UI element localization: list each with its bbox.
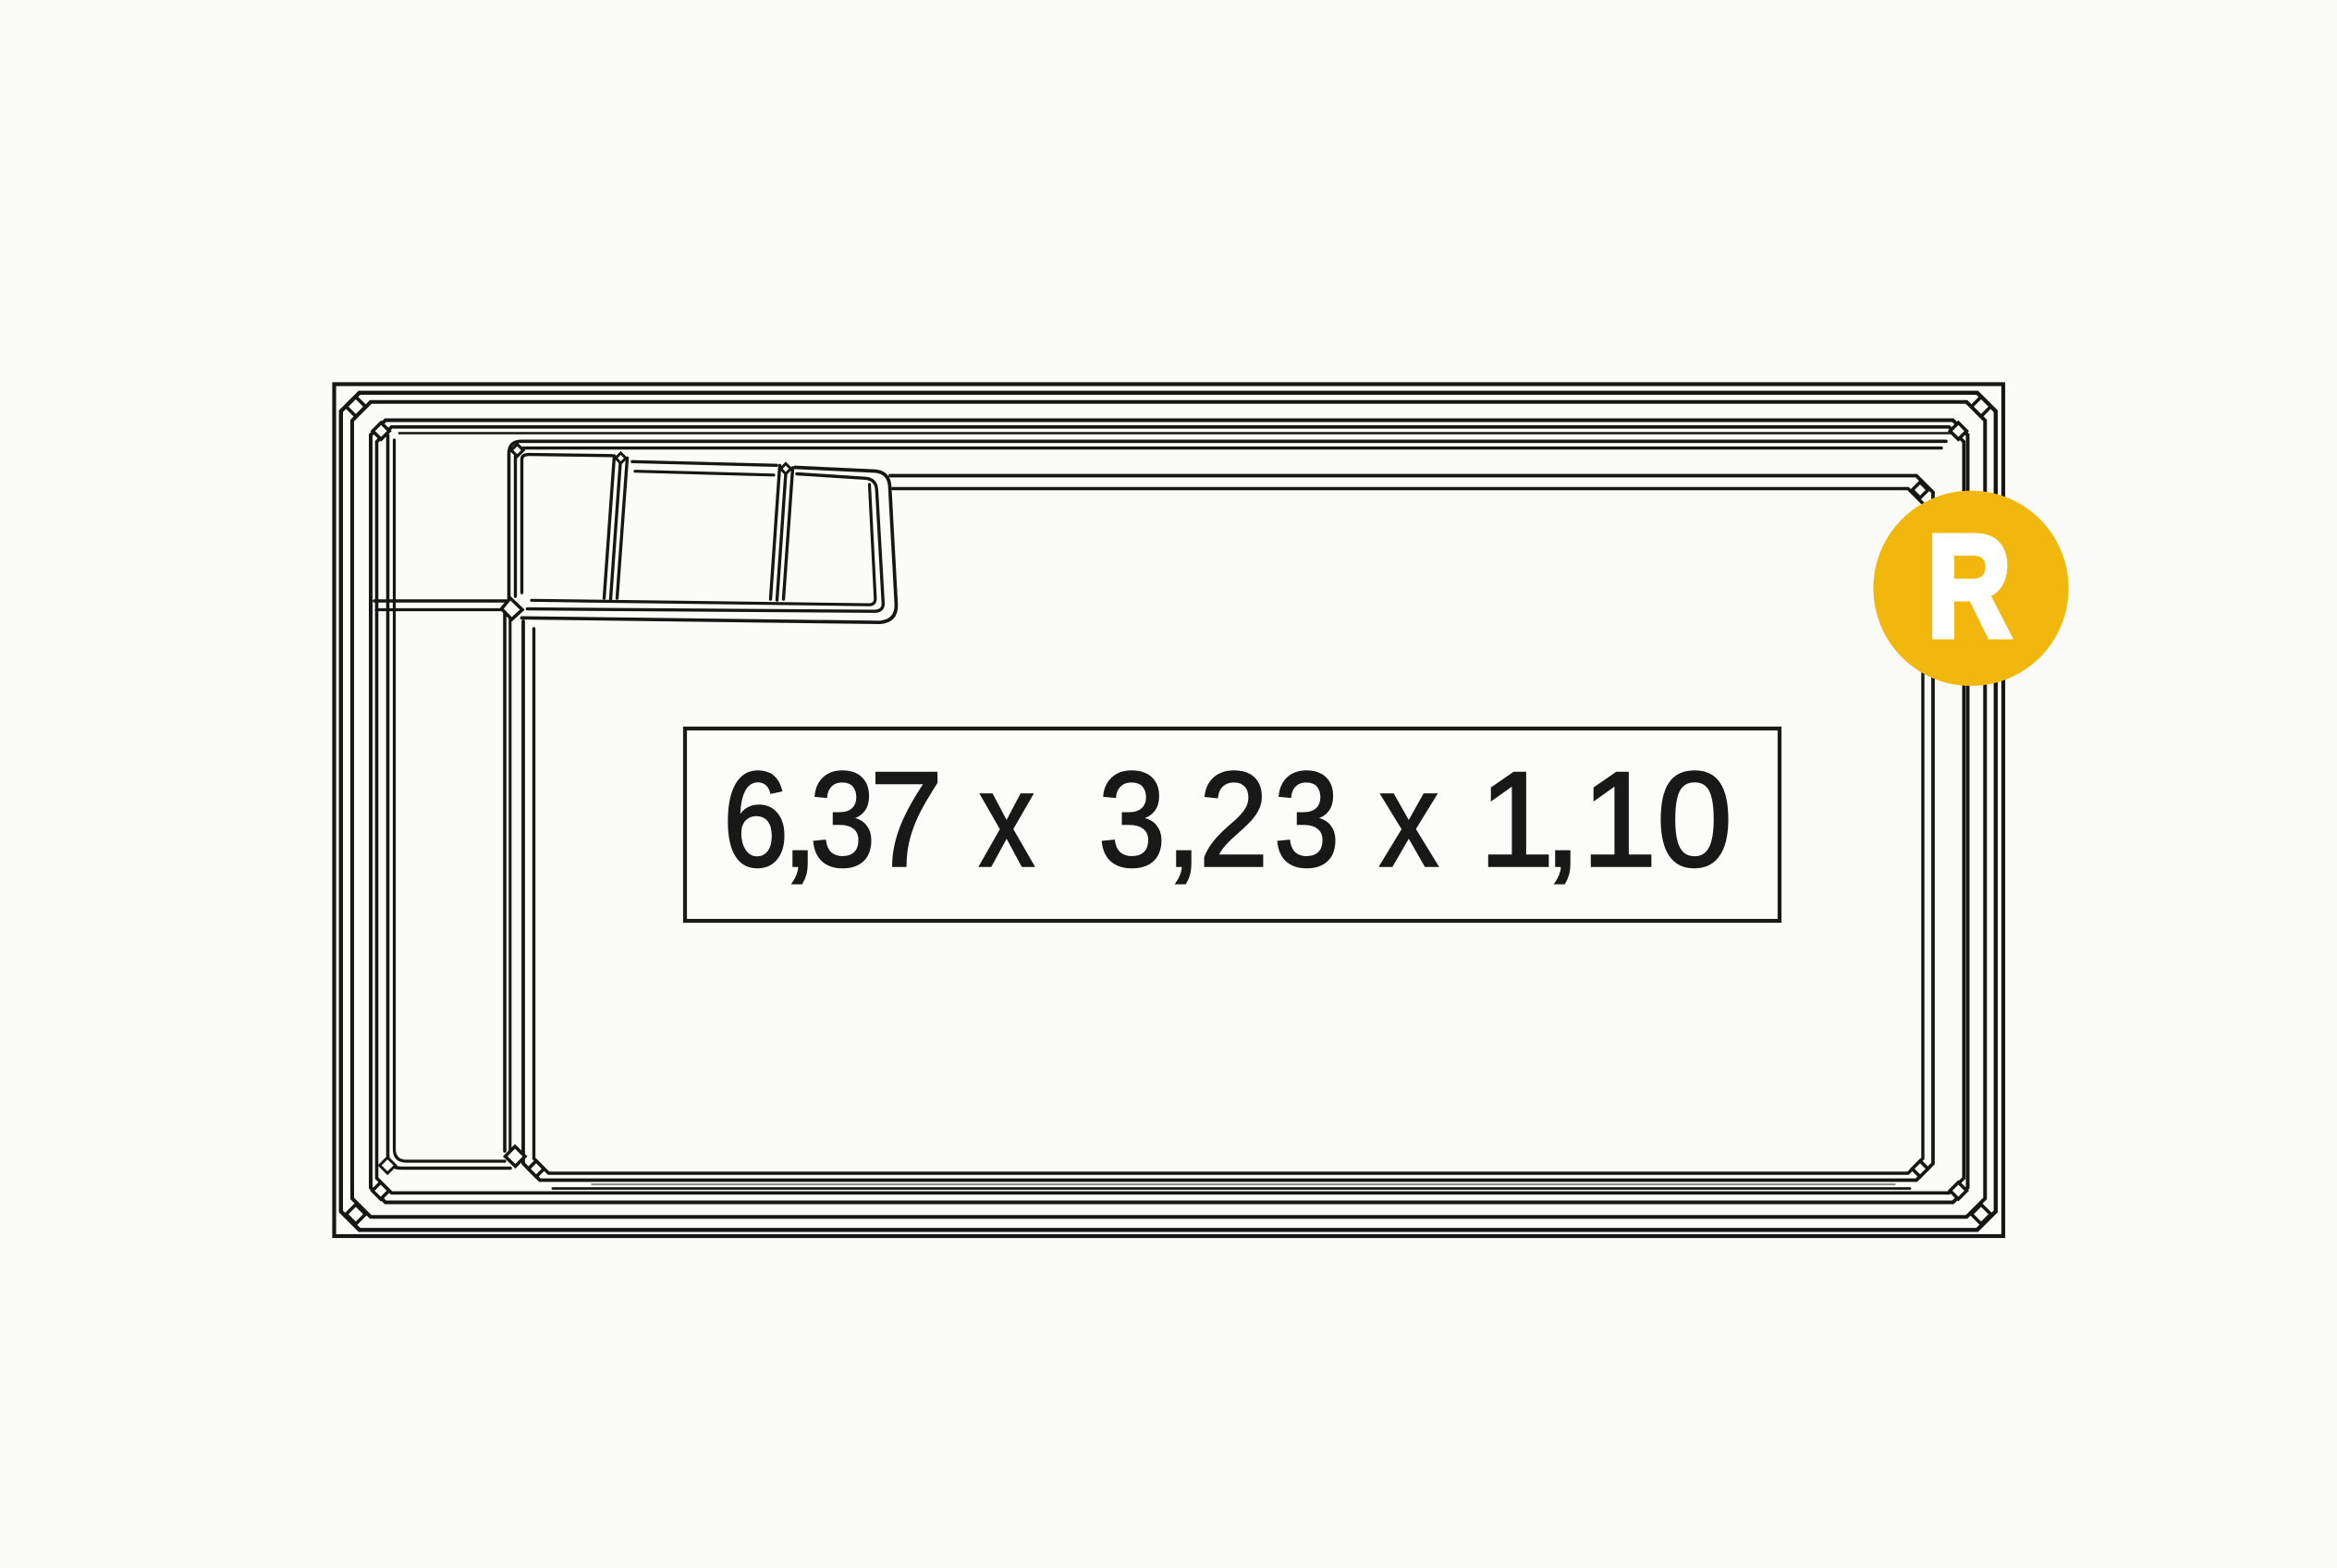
- svg-text:3: 3: [1098, 744, 1166, 895]
- svg-text:,: ,: [1165, 744, 1203, 895]
- svg-text:R: R: [1927, 506, 2012, 668]
- svg-text:3: 3: [1274, 744, 1340, 895]
- svg-text:,: ,: [1544, 744, 1582, 895]
- svg-text:2: 2: [1199, 744, 1268, 895]
- svg-text:6: 6: [723, 744, 789, 895]
- svg-text:3: 3: [810, 744, 875, 895]
- svg-text:1: 1: [1582, 744, 1657, 895]
- svg-text:0: 0: [1657, 744, 1732, 895]
- svg-text:7: 7: [870, 744, 943, 895]
- svg-text:x: x: [1379, 744, 1438, 895]
- svg-text:x: x: [979, 744, 1034, 895]
